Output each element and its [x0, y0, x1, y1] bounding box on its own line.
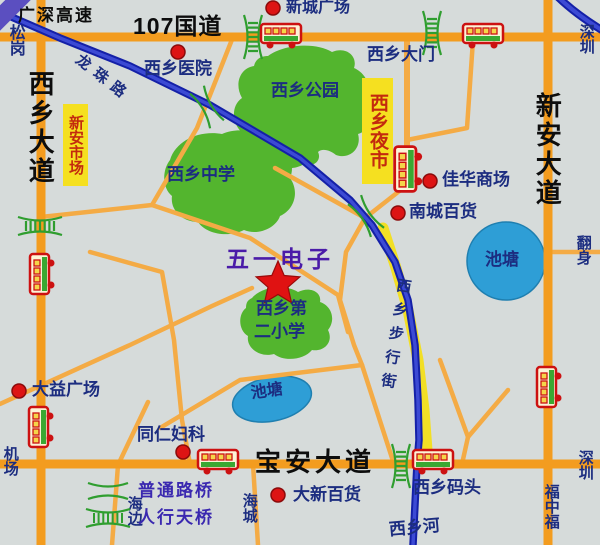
bus-icon-vertical [537, 367, 562, 407]
poi-dot-xincheng-plaza [266, 1, 280, 15]
haicheng-label: 海城 [241, 493, 257, 523]
poi-dot-hospital [171, 45, 185, 59]
xixiang-avenue-label: 西乡大道 [26, 70, 53, 186]
poi-dot-dayi-plaza [12, 384, 26, 398]
nancheng-store-label: 南城百货 [409, 203, 477, 221]
hospital-label: 西乡医院 [144, 60, 212, 78]
xinan-avenue-label: 新安大道 [533, 92, 560, 208]
legend-ordinary-bridge: 普通路桥 [84, 480, 214, 502]
bus-icon-vertical [29, 407, 54, 447]
night-market-label: 西乡夜市 [362, 78, 393, 184]
shenzhen-bottom-label: 深圳 [577, 450, 593, 480]
legend-pedestrian-overpass: 人行天桥 [84, 507, 214, 529]
pedestrian-overpass-icon [18, 217, 62, 235]
g107-label: 107国道 [133, 14, 222, 38]
park-label: 西乡公园 [271, 82, 339, 100]
ordinary-bridge-legend-label: 普通路桥 [138, 482, 214, 500]
poi-dot-jiahua-mall [423, 174, 437, 188]
pedestrian-overpass-icon [244, 15, 262, 59]
pond-east-label: 池塘 [485, 251, 519, 269]
bus-icon [413, 450, 453, 475]
guangshen-expressway-label: 广深高速 [18, 7, 94, 25]
daxin-store-label: 大新百货 [293, 486, 361, 504]
xinan-market-label: 新安市场 [63, 104, 88, 186]
songgang-label: 松岗 [6, 24, 23, 56]
fanshen-label: 翻身 [575, 235, 591, 265]
pedestrian-overpass-legend-icon [84, 507, 132, 529]
bus-icon [463, 24, 503, 49]
bus-icon [198, 450, 238, 475]
wharf-label: 西乡码头 [413, 479, 481, 497]
primary-school-label-line1: 西乡第 [256, 300, 307, 318]
dayi-plaza-label: 大益广场 [32, 381, 100, 399]
poi-dot-tongren-clinic [176, 445, 190, 459]
fuzhongfu-label: 福中福 [543, 484, 559, 529]
baoan-avenue-label: 宝安大道 [255, 449, 375, 476]
jiahua-mall-label: 佳华商场 [442, 171, 510, 189]
tongren-clinic-label: 同仁妇科 [137, 426, 205, 444]
primary-school-label-line2: 二小学 [254, 323, 305, 341]
pedestrian-overpass-icon [392, 444, 410, 488]
poi-dot-daxin-store [271, 488, 285, 502]
pedestrian-overpass-legend-label: 人行天桥 [138, 509, 214, 527]
shenzhen-top-label: 深圳 [578, 24, 594, 54]
gate-label: 西乡大门 [367, 46, 435, 64]
poi-dot-nancheng-store [391, 206, 405, 220]
poi-markers [12, 1, 437, 502]
airport-label: 机场 [2, 446, 18, 476]
bus-icon-vertical [30, 254, 55, 294]
middle-school-label: 西乡中学 [167, 166, 235, 184]
wuyi-dianzi-label: 五一电子 [226, 247, 334, 271]
bus-icon-vertical [395, 147, 422, 192]
ordinary-bridge-legend-icon [84, 480, 132, 502]
xincheng-plaza-label: 新城广场 [286, 0, 350, 17]
xixiang-map: 广深高速 107国道 松岗 新城广场 西乡医院 龙珠路 西乡大门 深圳 西乡公园… [0, 0, 600, 545]
bus-icon [261, 24, 301, 49]
